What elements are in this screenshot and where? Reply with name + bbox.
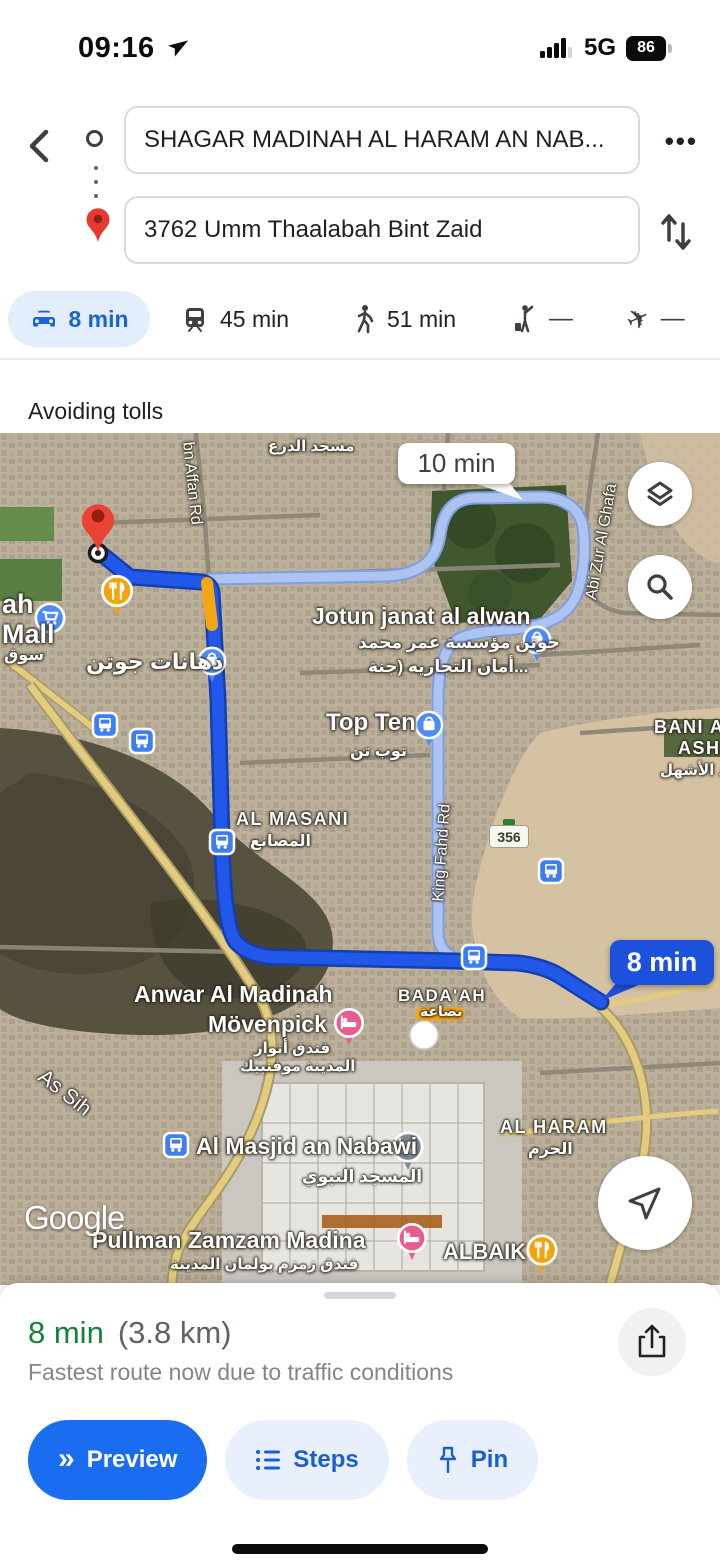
map-label: Al Masjid an Nabawi — [196, 1133, 417, 1160]
back-button[interactable] — [22, 126, 62, 166]
map-layers-button[interactable] — [628, 462, 692, 526]
layers-icon — [642, 476, 678, 512]
route-shield-356: 356 — [489, 819, 529, 848]
more-options-button[interactable]: ••• — [665, 126, 698, 157]
directions-header: SHAGAR MADINAH AL HARAM AN NAB... 3762 U… — [0, 90, 720, 285]
origin-field[interactable]: SHAGAR MADINAH AL HARAM AN NAB... — [124, 106, 640, 174]
search-icon — [643, 570, 677, 604]
destination-pin-icon — [84, 206, 112, 249]
train-icon — [181, 305, 209, 333]
map-search-button[interactable] — [628, 555, 692, 619]
route-options-note: Avoiding tolls — [28, 398, 163, 425]
clock: 09:16 — [78, 32, 155, 65]
car-icon — [29, 306, 59, 332]
primary-route-time-callout[interactable]: 8 min — [610, 940, 714, 985]
map-label: Pullman Zamzam Madina — [92, 1227, 366, 1254]
map-label: سوق — [4, 645, 44, 665]
status-bar: 09:16 5G 86 — [0, 0, 720, 90]
steps-button[interactable]: Steps — [225, 1420, 388, 1500]
preview-button[interactable]: » Preview — [28, 1420, 207, 1500]
map-label: Mövenpick — [208, 1011, 327, 1038]
map-label: بضاعة — [420, 1003, 462, 1020]
origin-point-marker — [410, 1021, 438, 1049]
google-attribution: Google — [24, 1199, 124, 1237]
origin-marker-icon — [86, 130, 103, 147]
map-label: المدينة موفنبيك — [240, 1057, 355, 1075]
pushpin-icon — [437, 1446, 459, 1474]
map-label: فندق أنوار — [254, 1039, 330, 1057]
travel-mode-bar: 8 min 45 min 51 min — — [0, 285, 720, 355]
map-label: ah — [2, 589, 34, 620]
map-label: Top Ten — [326, 709, 416, 737]
tab-flight[interactable]: ✈ — — [627, 291, 685, 347]
map-label: المصانع — [250, 831, 311, 851]
tab-walking[interactable]: 51 min — [352, 291, 456, 347]
map-label: المسجد النبوي — [302, 1167, 422, 1187]
tab-drive[interactable]: 8 min — [8, 291, 150, 347]
district-label: AL MASANI — [236, 809, 349, 830]
map-label: توب تن — [350, 741, 407, 761]
map-label: عبد الأشهل — [660, 761, 720, 779]
map-label: ALBAIK — [443, 1239, 526, 1265]
destination-field[interactable]: 3762 Umm Thaalabah Bint Zaid — [124, 196, 640, 264]
route-distance: (3.8 km) — [118, 1315, 232, 1350]
battery-percent: 86 — [626, 36, 666, 61]
bus-stop-icon[interactable] — [539, 859, 563, 883]
preview-chevrons-icon: » — [58, 1444, 75, 1474]
map-label: جوتن مؤسسة عمر محمد — [358, 633, 560, 653]
ride-hail-icon — [512, 304, 538, 334]
cellular-signal-icon — [540, 37, 574, 59]
navigate-arrow-icon — [622, 1180, 668, 1226]
drag-handle[interactable] — [324, 1292, 396, 1299]
bus-stop-icon[interactable] — [164, 1133, 188, 1157]
map-canvas[interactable]: مسجد الدرع bn Affan Rd Abi Zur Al Ghafa … — [0, 433, 720, 1285]
network-type: 5G — [584, 34, 616, 62]
map-label: فندق زمزم بولمان المدينة — [170, 1255, 358, 1273]
map-label: أمان التجاريه (جنة... — [368, 657, 528, 677]
share-button[interactable] — [618, 1308, 686, 1376]
bus-stop-icon[interactable] — [462, 945, 486, 969]
phone-screen: 09:16 5G 86 — [0, 0, 720, 1561]
route-summary-sheet: 8 min(3.8 km) Fastest route now due to t… — [0, 1283, 720, 1561]
tab-ride-hail[interactable]: — — [512, 291, 573, 347]
plane-icon: ✈ — [622, 300, 656, 338]
my-location-button[interactable] — [598, 1156, 692, 1250]
walk-icon — [352, 304, 376, 334]
traffic-segment-route — [207, 583, 212, 625]
map-label: الحرم — [528, 1139, 573, 1159]
home-indicator[interactable] — [232, 1544, 488, 1554]
tab-transit[interactable]: 45 min — [181, 291, 289, 347]
location-services-icon — [166, 36, 190, 65]
route-note: Fastest route now due to traffic conditi… — [28, 1359, 453, 1386]
map-label: Jotun janat al alwan — [312, 603, 531, 630]
divider — [0, 358, 720, 360]
map-label: مسجد الدرع — [268, 437, 355, 455]
map-label: دهانات جوتن — [86, 649, 223, 675]
alt-route-time-callout[interactable]: 10 min — [398, 443, 515, 484]
map-label: Anwar Al Madinah — [134, 981, 333, 1008]
pin-button[interactable]: Pin — [407, 1420, 538, 1500]
bus-stop-icon[interactable] — [130, 729, 154, 753]
bus-stop-icon[interactable] — [210, 830, 234, 854]
steps-list-icon — [255, 1448, 281, 1472]
district-label: BANI A — [654, 717, 720, 738]
bus-stop-icon[interactable] — [93, 713, 117, 737]
route-duration: 8 min — [28, 1315, 104, 1350]
battery-icon: 86 — [626, 36, 672, 61]
district-label: ASHH — [678, 738, 720, 759]
district-label: AL HARAM — [500, 1117, 608, 1138]
share-icon — [636, 1323, 668, 1361]
swap-waypoints-button[interactable] — [654, 202, 698, 258]
